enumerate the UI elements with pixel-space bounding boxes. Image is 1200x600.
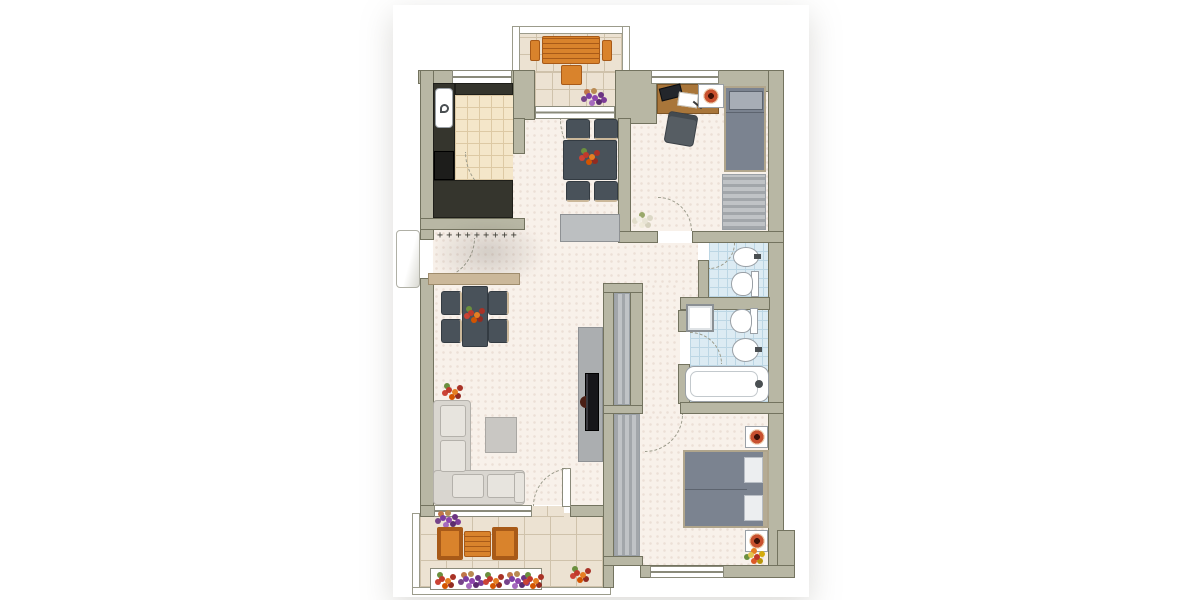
wall-bathrooms-bottom: [680, 402, 784, 414]
kitchen-stove: [434, 151, 454, 180]
balcony-top-railing-left: [512, 26, 520, 72]
wall-closet-bottom-cap: [603, 556, 643, 566]
window-kitchen: [452, 70, 512, 84]
wall-balcony-jamb-left: [513, 70, 535, 120]
wardrobe-corridor-upper: [614, 293, 630, 405]
entry-console: [428, 273, 520, 285]
flower-box-cluster-1: [439, 576, 445, 582]
tv-stand-icon: [580, 396, 586, 408]
toilet-small-bath-bowl: [731, 272, 753, 296]
wardrobe-bedroom-small: [722, 174, 766, 230]
double-bed-pillow-1: [744, 457, 763, 483]
balcony-bottom-chair-2: [492, 527, 518, 560]
window-master: [650, 566, 724, 578]
lamp-bedroom-small: [703, 88, 719, 104]
wall-bathroom-small-left: [698, 260, 709, 302]
toilet-large-bath-bowl: [730, 309, 752, 333]
flowers-master-bedroom: [748, 552, 754, 558]
threshold-living-balcony: [530, 506, 564, 517]
washbasin-small-tap-icon: [754, 254, 761, 259]
single-bed-pillow: [729, 91, 763, 110]
flowers-hall-table: [468, 310, 474, 316]
sofa-cushion-3: [452, 474, 484, 498]
kitchen-faucet-icon: [440, 104, 449, 113]
double-bed: [683, 450, 769, 528]
bathtub-faucet-icon: [755, 380, 763, 388]
desk-chair: [663, 111, 698, 148]
hall-chair-4: [488, 319, 509, 343]
balcony-top-chair: [561, 65, 582, 85]
balcony-top-bench-right: [602, 40, 612, 61]
window-bedroom-small: [651, 70, 719, 84]
balcony-bottom-table: [464, 531, 491, 557]
wall-bedroom-small-bottom-left: [618, 231, 658, 243]
washbasin-large-tap-icon: [755, 347, 762, 352]
double-bed-headboard: [763, 452, 767, 526]
balcony-top-railing-right: [622, 26, 630, 72]
double-bed-fold: [685, 489, 747, 490]
single-bed-fold: [726, 112, 764, 113]
dining-table: [563, 140, 617, 180]
double-bed-pillow-2: [744, 495, 763, 521]
sofa-armrest: [514, 472, 525, 503]
flowers-balcony-bottom-right: [574, 570, 580, 576]
lamp-master-bottom: [749, 533, 765, 549]
sofa-cushion-2: [440, 440, 466, 472]
dining-chair-4: [594, 181, 618, 202]
flowers-balcony-top: [586, 93, 592, 99]
floor-corridor: [643, 283, 680, 414]
wall-right: [768, 70, 784, 578]
wall-bathrooms-top: [692, 231, 784, 243]
flowers-balcony-bottom-pot: [440, 515, 446, 521]
kitchen-counter-top: [455, 83, 513, 95]
balcony-top-railing-top: [512, 26, 630, 34]
hall-chair-2: [441, 319, 462, 343]
sofa-cushion-1: [440, 405, 466, 437]
window-living: [434, 505, 532, 517]
lamp-master-top: [749, 429, 765, 445]
wall-left: [420, 70, 434, 240]
bathtub: [685, 366, 769, 402]
wardrobe-corridor-lower: [614, 414, 640, 556]
flowers-bedroom-small: [636, 216, 642, 222]
balcony-bottom-chair-1: [437, 527, 463, 560]
flowers-sofa-corner: [446, 387, 452, 393]
wall-left-lower: [420, 278, 434, 517]
wall-closet-mid-cap: [603, 405, 643, 414]
wall-living-bottom-mid: [570, 505, 604, 517]
dining-chair-1: [566, 119, 590, 140]
floor-plan-canvas: +++++++++: [0, 0, 1200, 600]
single-bed: [724, 86, 766, 172]
flower-box: [430, 568, 542, 590]
kitchen-counter-bottom: [433, 180, 513, 218]
flower-box-cluster-2: [463, 576, 469, 582]
balcony-sliding-door: [535, 106, 615, 119]
bathtub-inner: [690, 371, 758, 397]
tv-screen: [585, 373, 599, 431]
flower-box-cluster-4: [509, 576, 515, 582]
hall-chair-3: [488, 291, 509, 315]
balcony-top-table: [542, 36, 600, 64]
paper-icon: [677, 92, 699, 109]
sideboard: [560, 214, 620, 242]
balcony-top-bench-left: [530, 40, 540, 61]
wall-closet-right-rail: [630, 283, 643, 414]
entry-door-leaf: [396, 230, 420, 288]
coffee-table: [485, 417, 517, 453]
balcony-bottom-railing-left: [412, 513, 420, 595]
hall-table: [462, 286, 488, 347]
wall-closet-left-rail: [603, 283, 614, 588]
flower-box-cluster-5: [527, 576, 533, 582]
hall-chair-1: [441, 291, 462, 315]
dining-chair-2: [594, 119, 618, 140]
flowers-dining-table: [583, 152, 589, 158]
wall-closet-top-cap: [603, 283, 643, 293]
washing-machine: [686, 304, 714, 332]
flower-box-cluster-3: [487, 576, 493, 582]
dining-chair-3: [566, 181, 590, 202]
wall-kitchen-right: [513, 118, 525, 154]
